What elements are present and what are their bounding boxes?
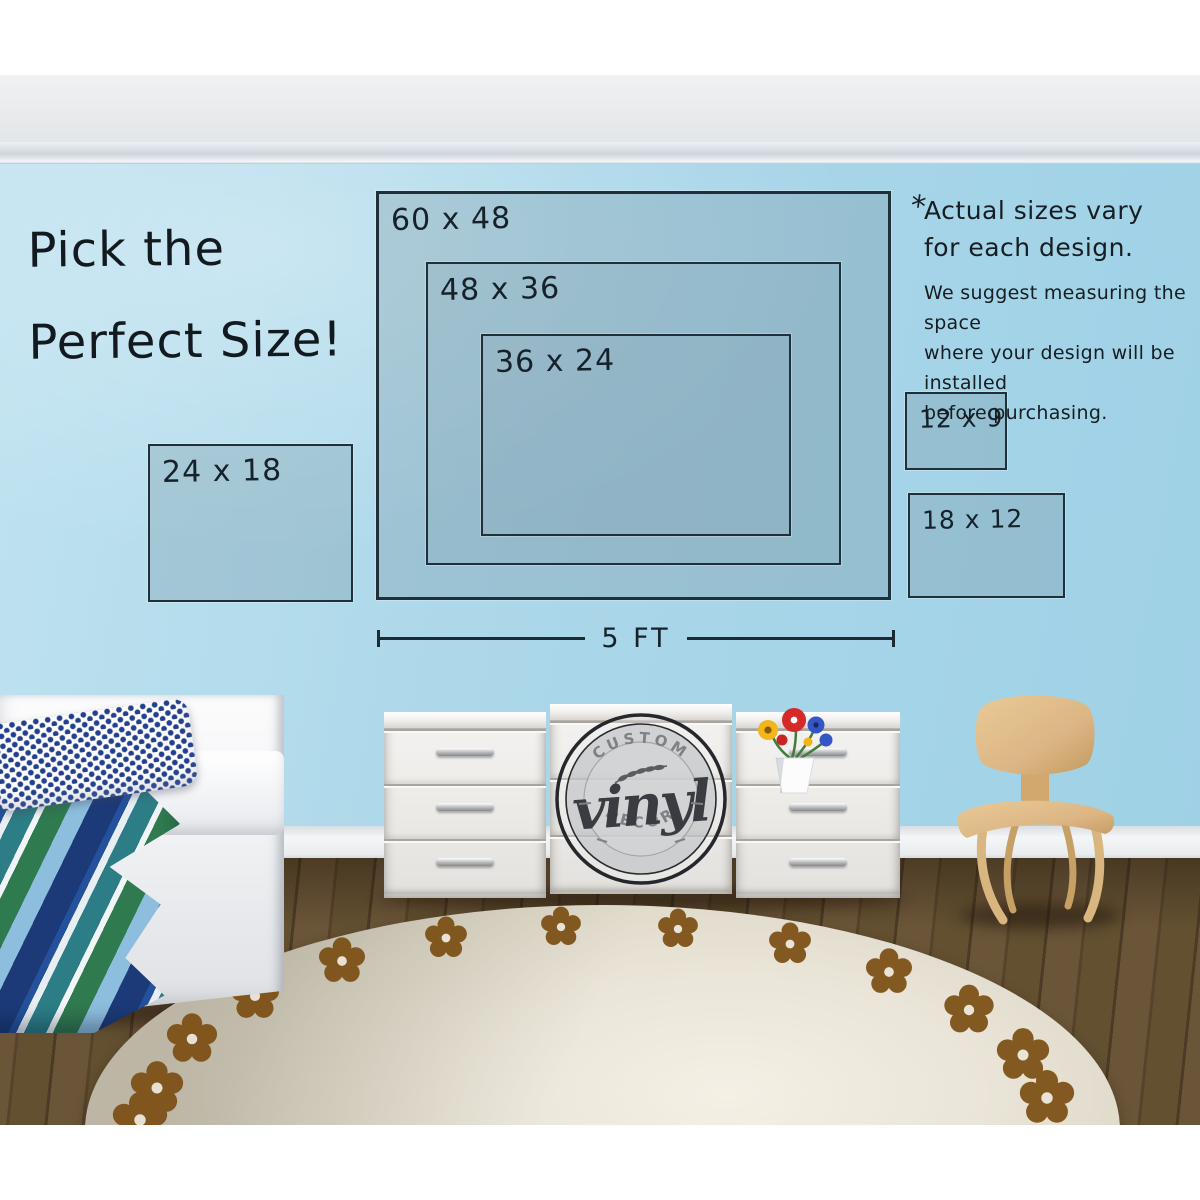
headline-line2: Perfect Size! xyxy=(28,293,359,388)
measure-line-left xyxy=(380,637,585,640)
headline-line1: Pick the xyxy=(27,201,358,296)
bed xyxy=(0,695,292,1015)
chair-legs xyxy=(981,818,1099,920)
product-image: Pick the Perfect Size! 60 x 48 48 x 36 3… xyxy=(0,0,1200,1200)
note-headline-2: for each design. xyxy=(924,229,1196,266)
drawer xyxy=(384,839,546,894)
dresser-left xyxy=(384,712,546,898)
flower-vase xyxy=(752,630,836,795)
headline: Pick the Perfect Size! xyxy=(27,201,359,388)
custom-vinyl-decor-logo: CUSTOM DECOR vinyl xyxy=(551,709,731,889)
chair-seat xyxy=(958,801,1114,838)
drawer xyxy=(384,729,546,784)
crown-molding xyxy=(0,142,1200,164)
note-body-1: We suggest measuring the space xyxy=(924,278,1196,338)
note-body-2: where your design will be installed xyxy=(924,338,1196,398)
note-body-3: before purchasing. xyxy=(924,398,1196,428)
chair-backrest xyxy=(976,696,1095,775)
drawer-handle xyxy=(436,803,494,811)
size-label-48x36: 48 x 36 xyxy=(440,271,561,308)
drawer xyxy=(384,784,546,839)
size-rect-18x12: 18 x 12 xyxy=(908,493,1065,598)
size-label-36x24: 36 x 24 xyxy=(495,343,616,380)
drawer-handle xyxy=(789,803,847,811)
measure-label: 5 FT xyxy=(601,623,670,654)
drawer xyxy=(736,839,900,894)
drawer-handle xyxy=(789,858,847,866)
ceiling xyxy=(0,75,1200,142)
measure-right-tick xyxy=(892,630,895,647)
room-photo: Pick the Perfect Size! 60 x 48 48 x 36 3… xyxy=(0,75,1200,1125)
bottom-white-margin xyxy=(0,1125,1200,1200)
size-label-18x12: 18 x 12 xyxy=(922,504,1024,535)
size-rect-36x24: 36 x 24 xyxy=(481,334,791,536)
size-label-60x48: 60 x 48 xyxy=(391,201,512,238)
size-rect-24x18: 24 x 18 xyxy=(148,444,353,602)
logo-script-text: vinyl xyxy=(570,767,713,843)
top-white-margin xyxy=(0,0,1200,75)
drawer-handle xyxy=(436,858,494,866)
disclaimer-note: * Actual sizes vary for each design. We … xyxy=(896,192,1196,428)
note-headline-1: Actual sizes vary xyxy=(924,192,1196,229)
drawer-handle xyxy=(436,748,494,756)
dresser-top xyxy=(384,712,546,729)
size-label-24x18: 24 x 18 xyxy=(162,453,283,490)
wooden-chair xyxy=(945,692,1125,932)
